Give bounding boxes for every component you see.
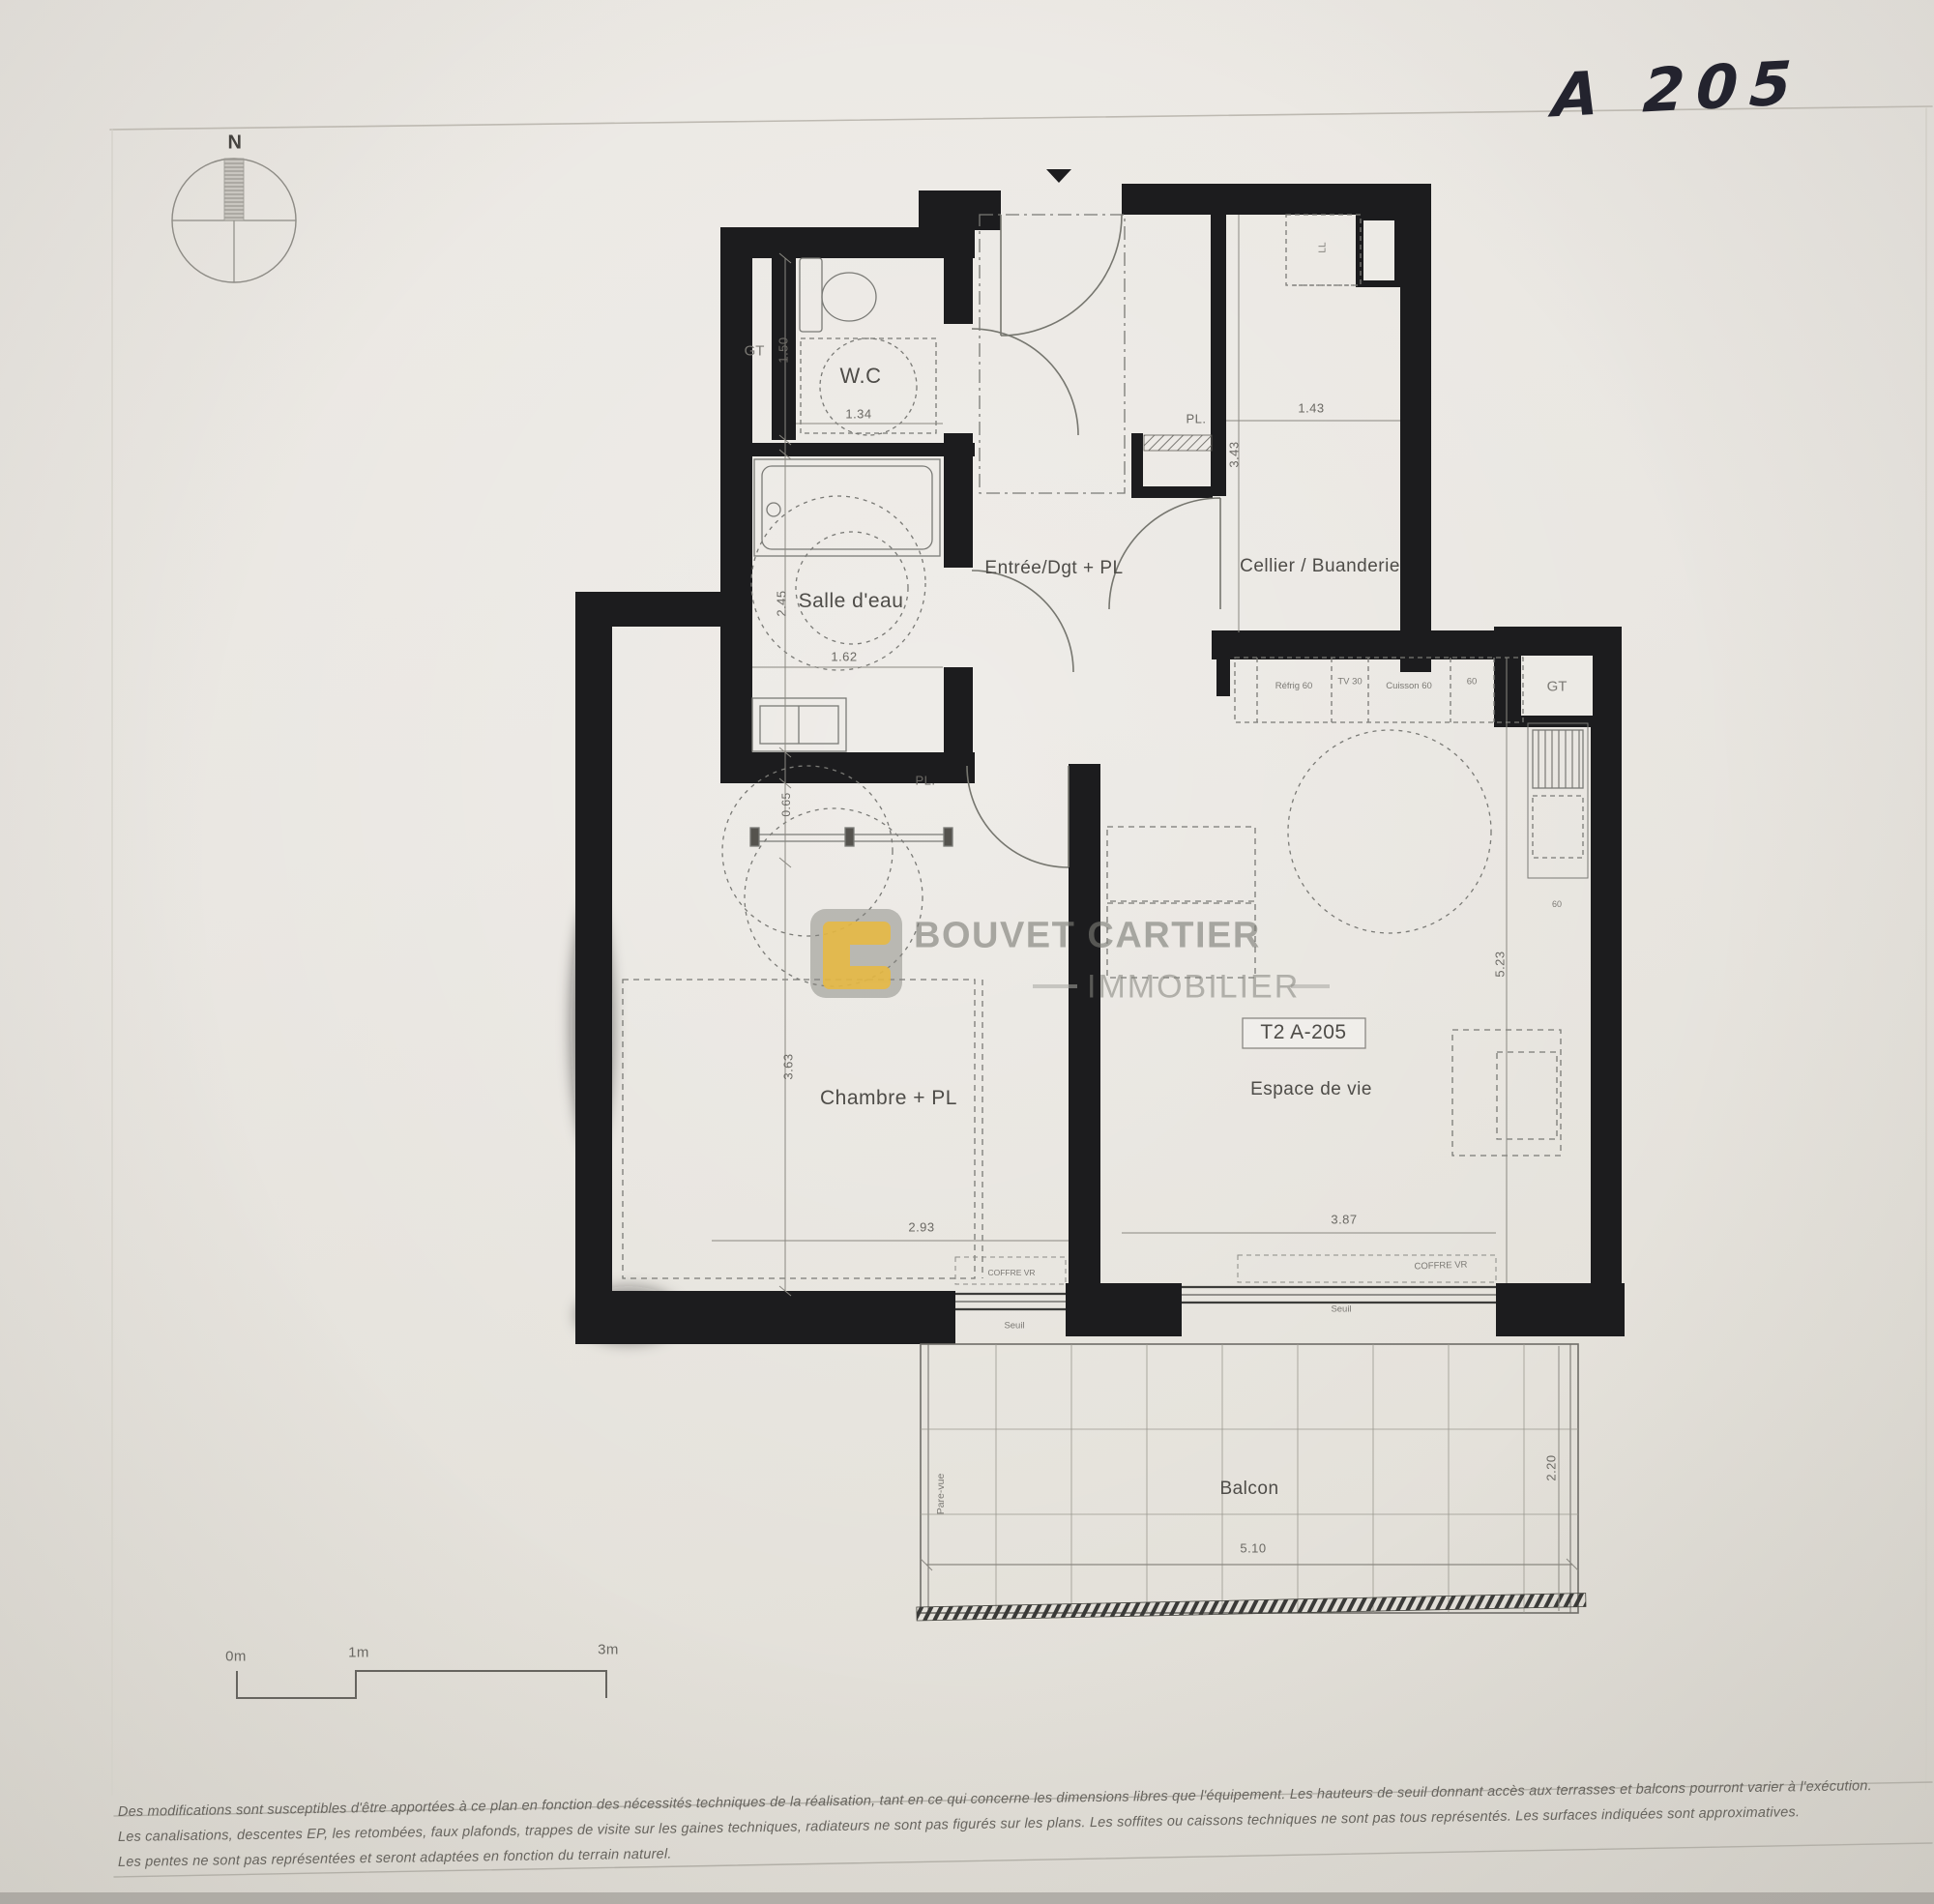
sink-drainer: [1533, 730, 1583, 788]
entrance-door-arc: [1001, 215, 1122, 336]
entree-closet-hatch: [1144, 435, 1212, 451]
label-coffre-vr-chambre: COFFRE VR: [987, 1268, 1035, 1277]
unit-box-label: T2 A-205: [1260, 1021, 1346, 1044]
wc-door-arc: [972, 329, 1078, 435]
label-sink-60: 60: [1552, 899, 1562, 909]
dim-balcon-height: 2.20: [1544, 1454, 1559, 1480]
room-label-gt-top: GT: [745, 343, 765, 360]
room-label-entree: Entrée/Dgt + PL: [984, 558, 1123, 579]
room-label-cellier: Cellier / Buanderie: [1240, 556, 1400, 577]
chambre-door-arc: [967, 766, 1069, 867]
logo-text-line1: BOUVET CARTIER: [914, 916, 1261, 957]
dim-salle-eau-height: 2.45: [775, 590, 789, 616]
scale-label-3m: 3m: [598, 1642, 619, 1658]
room-label-chambre: Chambre + PL: [820, 1087, 957, 1110]
room-label-espace: Espace de vie: [1250, 1079, 1372, 1100]
dim-salle-eau-width: 1.62: [831, 650, 857, 664]
scale-label-0m: 0m: [225, 1649, 247, 1665]
living-door-arc: [1109, 498, 1220, 609]
shower-tray: [754, 459, 940, 556]
sink-outline: [1533, 796, 1583, 858]
dim-chambre-height: 3.63: [781, 1053, 796, 1079]
handwritten-unit-label: A 205: [1551, 47, 1804, 132]
walls: [575, 169, 1625, 1344]
room-label-salle-eau: Salle d'eau: [799, 590, 904, 613]
fixtures: [623, 215, 1588, 1278]
label-pare-vue: Pare-vue: [935, 1474, 947, 1515]
label-appliance-tv: TV 30: [1337, 677, 1362, 688]
label-pl-chambre: PL.: [915, 774, 935, 788]
north-compass-icon: [172, 159, 296, 282]
dim-espace-width: 3.87: [1331, 1213, 1357, 1227]
label-appliance-60: 60: [1467, 677, 1478, 688]
entrance-marker-triangle: [1046, 169, 1071, 183]
toilet-tank: [800, 258, 822, 332]
label-pl-entree: PL.: [1186, 412, 1206, 426]
scale-bar: [237, 1671, 606, 1698]
label-coffre-vr-espace: COFFRE VR: [1414, 1260, 1467, 1273]
scale-label-1m: 1m: [348, 1645, 369, 1661]
dim-wc-width: 1.34: [845, 407, 871, 422]
logo-text-line2: IMMOBILIER: [1087, 969, 1300, 1007]
scanned-floor-plan-page: A 205 N GT 1.50 W.C 1.34 Salle d'eau 1.6…: [0, 0, 1934, 1904]
dim-chambre-closet: 0.65: [779, 792, 793, 816]
label-appliance-cuisson: Cuisson 60: [1384, 682, 1434, 691]
label-seuil-chambre: Seuil: [1004, 1321, 1024, 1332]
dim-espace-height: 5.23: [1493, 951, 1508, 977]
label-appliance-refrig: Réfrig 60: [1271, 682, 1317, 691]
dim-wc-height: 1.50: [777, 337, 791, 363]
dim-cellier-width: 1.43: [1298, 401, 1324, 416]
dim-balcon-width: 5.10: [1240, 1541, 1266, 1556]
room-label-balcon: Balcon: [1219, 1479, 1278, 1500]
room-label-gt-kitchen: GT: [1547, 679, 1568, 695]
salle-eau-door-arc: [972, 571, 1073, 672]
toilet-bowl: [822, 273, 876, 321]
dim-cellier-height: 3.43: [1227, 441, 1242, 467]
dim-chambre-width: 2.93: [908, 1220, 934, 1235]
compass-north-label: N: [228, 132, 243, 155]
balcony-railing-hatch: [917, 1594, 1586, 1621]
sheet-border-lines: [0, 106, 1934, 1904]
room-label-wc: W.C: [839, 364, 881, 389]
label-seuil-espace: Seuil: [1331, 1304, 1351, 1315]
label-washer: LL: [1318, 242, 1329, 252]
